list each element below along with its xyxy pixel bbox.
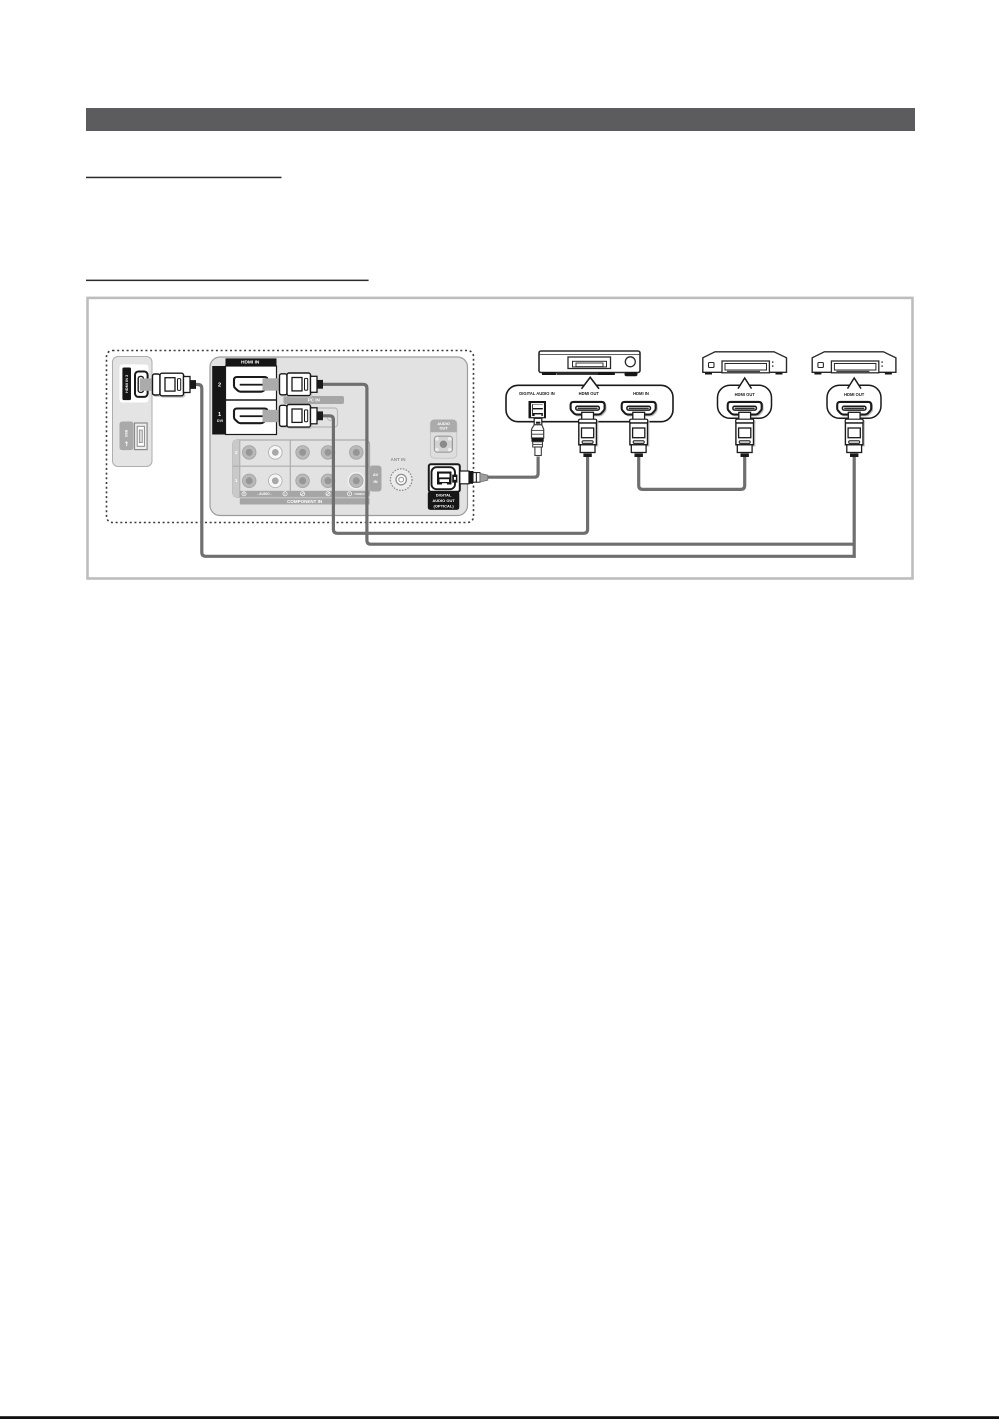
svg-text:PC IN: PC IN xyxy=(308,398,321,403)
svg-text:2: 2 xyxy=(218,382,221,388)
svg-text:HDMI IN: HDMI IN xyxy=(633,391,649,396)
svg-text:HDMI OUT: HDMI OUT xyxy=(844,392,865,397)
svg-text:- AUDIO -: - AUDIO - xyxy=(257,492,272,496)
svg-text:HDMI IN: HDMI IN xyxy=(241,359,260,365)
svg-text:IN: IN xyxy=(374,479,378,484)
svg-text:AUDIO OUT: AUDIO OUT xyxy=(432,498,455,503)
svg-text:1: 1 xyxy=(235,478,238,483)
svg-text:HDMI IN 3: HDMI IN 3 xyxy=(125,375,129,393)
svg-text:2: 2 xyxy=(235,450,238,455)
svg-text:AV: AV xyxy=(373,472,379,477)
svg-text:ANT IN: ANT IN xyxy=(391,457,406,462)
svg-text:R: R xyxy=(243,492,245,496)
svg-text:HDMI OUT: HDMI OUT xyxy=(579,391,600,396)
svg-text:DVI: DVI xyxy=(217,419,223,423)
svg-text:1: 1 xyxy=(218,412,221,418)
svg-text:DIGITAL AUDIO IN: DIGITAL AUDIO IN xyxy=(519,391,554,396)
svg-text:Y: Y xyxy=(349,492,351,496)
svg-text:DIGITAL: DIGITAL xyxy=(436,493,452,498)
svg-text:HDMI OUT: HDMI OUT xyxy=(735,392,756,397)
svg-text:OUT: OUT xyxy=(439,426,448,431)
svg-text:COMPONENT IN: COMPONENT IN xyxy=(287,499,322,504)
svg-text:(OPTICAL): (OPTICAL) xyxy=(433,503,454,508)
svg-text:USB: USB xyxy=(125,429,129,437)
svg-text:/VIDEO: /VIDEO xyxy=(354,492,365,496)
